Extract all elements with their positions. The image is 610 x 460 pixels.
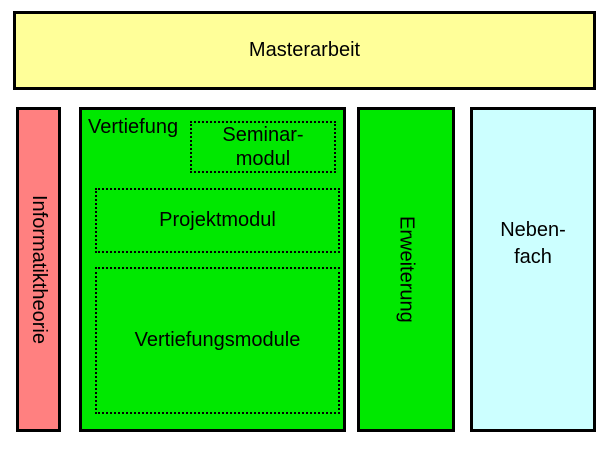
masterarbeit-block: Masterarbeit — [13, 11, 596, 90]
vertiefung-block: Vertiefung Seminar- modul Projektmodul V… — [79, 107, 346, 432]
projektmodul-label: Projektmodul — [159, 209, 276, 232]
informatiktheorie-block: Informatiktheorie — [16, 107, 61, 432]
vertiefungsmodule-label: Vertiefungsmodule — [135, 329, 301, 352]
masterarbeit-label: Masterarbeit — [249, 39, 360, 62]
nebenfach-block: Neben- fach — [470, 107, 596, 432]
vertiefung-label: Vertiefung — [88, 116, 178, 139]
projektmodul-block: Projektmodul — [95, 188, 340, 253]
study-program-diagram: Masterarbeit Informatiktheorie Vertiefun… — [0, 0, 610, 460]
seminarmodul-label: Seminar- modul — [222, 123, 303, 171]
erweiterung-label: Erweiterung — [395, 216, 418, 323]
nebenfach-label-line1: Neben- — [500, 217, 566, 244]
seminarmodul-block: Seminar- modul — [190, 121, 336, 173]
seminarmodul-label-line1: Seminar- — [222, 123, 303, 147]
vertiefungsmodule-block: Vertiefungsmodule — [95, 267, 340, 414]
nebenfach-label-line2: fach — [500, 244, 566, 271]
nebenfach-label: Neben- fach — [500, 217, 566, 271]
informatiktheorie-label: Informatiktheorie — [27, 195, 50, 344]
seminarmodul-label-line2: modul — [222, 147, 303, 171]
erweiterung-block: Erweiterung — [357, 107, 455, 432]
